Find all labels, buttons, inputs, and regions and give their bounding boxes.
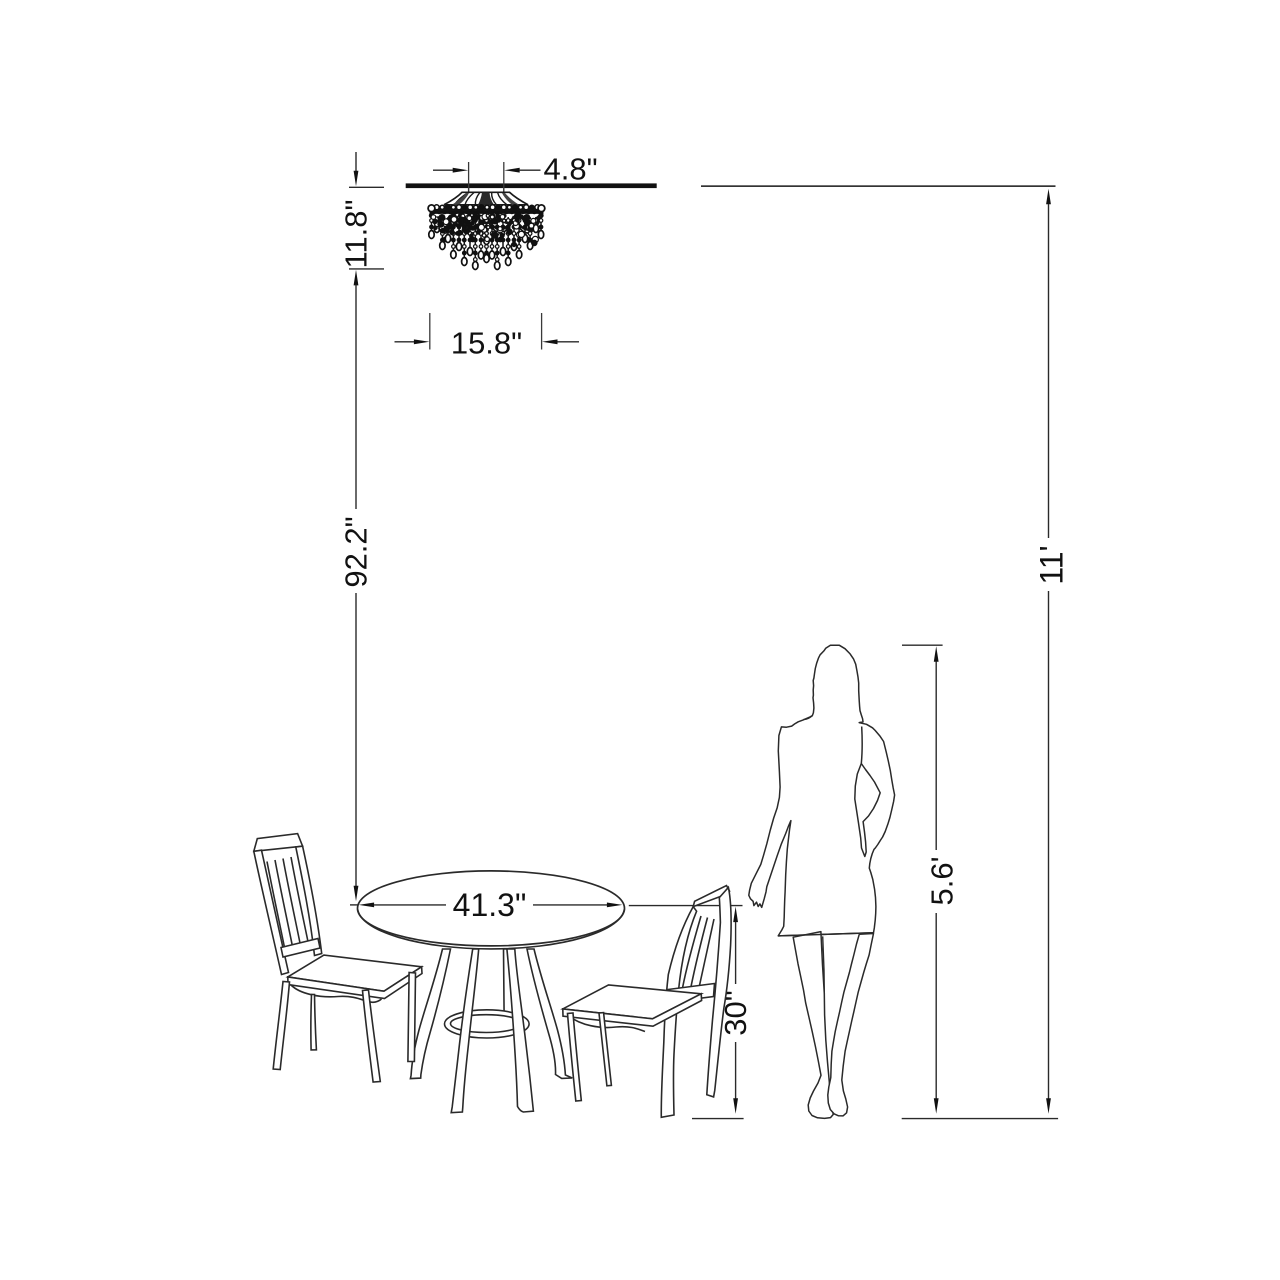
svg-text:15.8": 15.8" [451, 326, 522, 361]
svg-text:11.8": 11.8" [339, 199, 374, 268]
svg-text:4.8": 4.8" [544, 152, 598, 187]
svg-text:92.2": 92.2" [339, 516, 374, 587]
svg-text:11': 11' [1034, 545, 1070, 584]
svg-text:5.6': 5.6' [925, 856, 960, 905]
svg-text:41.3": 41.3" [453, 887, 527, 923]
